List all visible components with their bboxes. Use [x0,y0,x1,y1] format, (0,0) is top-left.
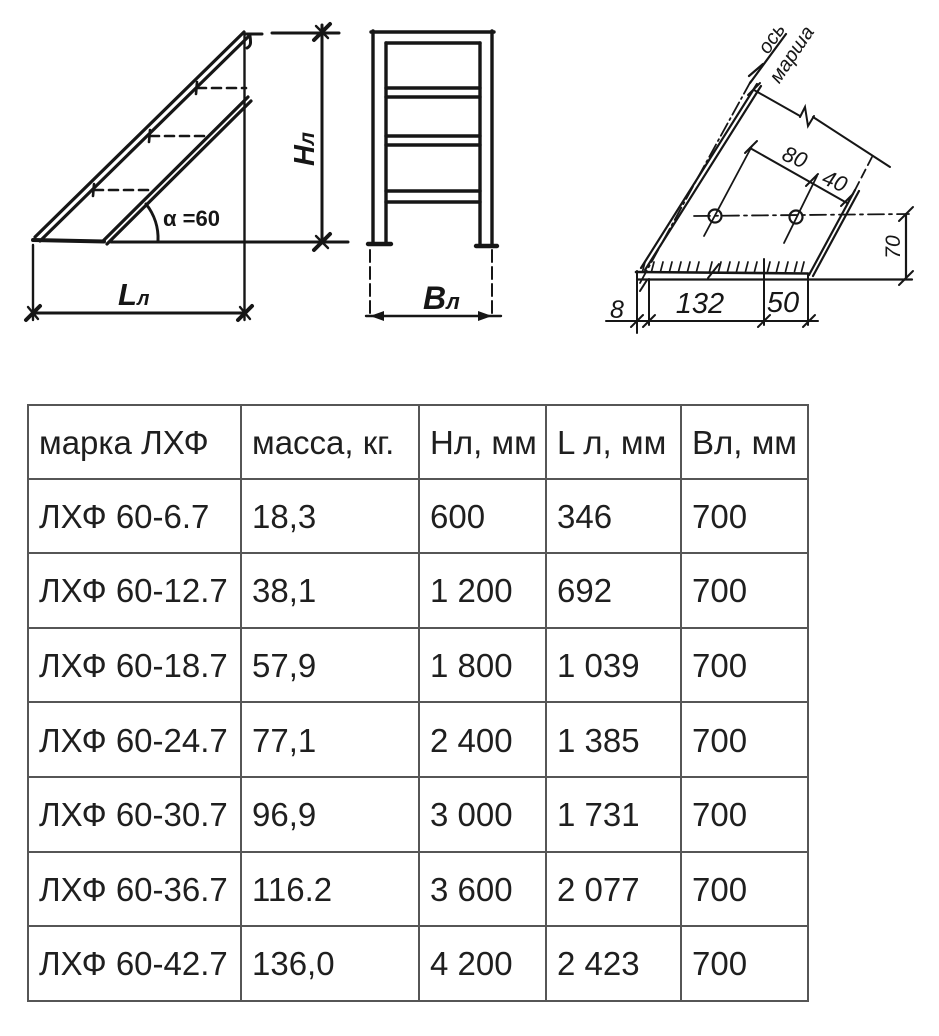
svg-text:Lл: Lл [118,277,150,312]
svg-text:50: 50 [767,287,799,319]
svg-text:80: 80 [779,141,812,174]
svg-text:70: 70 [882,235,905,259]
svg-text:132: 132 [676,288,724,320]
svg-text:Bл: Bл [423,280,460,316]
svg-text:α =60: α =60 [163,206,220,231]
svg-text:40: 40 [819,165,852,198]
svg-text:Hл: Hл [289,132,321,166]
svg-text:8: 8 [610,296,624,324]
